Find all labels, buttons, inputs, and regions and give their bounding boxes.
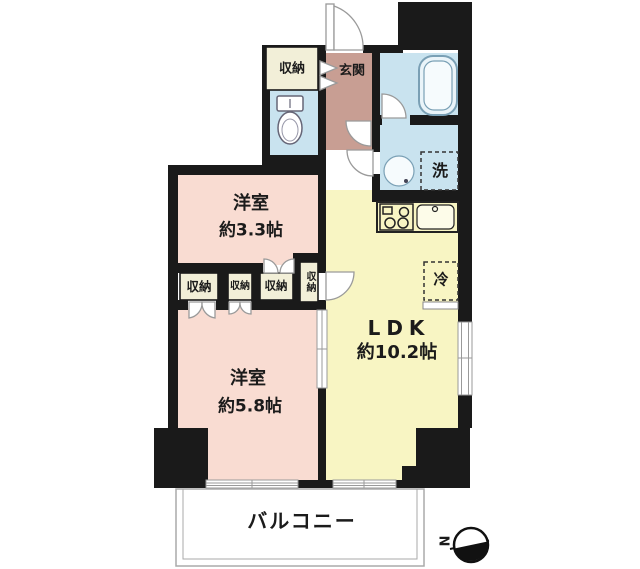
refrigerator-shelf — [423, 302, 458, 309]
entrance-door-leaf — [326, 4, 334, 50]
closet1-label: 収納 — [186, 281, 211, 294]
bathtub-icon — [419, 56, 457, 115]
washbasin-icon — [384, 156, 414, 186]
entrance-label: 玄関 — [339, 65, 365, 78]
kitchen-counter — [377, 202, 458, 232]
bedroom-small-size: 約3.3帖 — [219, 223, 283, 240]
floorplan-canvas: 収納 玄関 洋室 約3.3帖 収納 収納 収納 収納 洋室 約5.8帖 LDK … — [0, 0, 640, 569]
compass-icon — [450, 528, 489, 562]
bedroom-small-area — [178, 173, 318, 265]
washer-label: 洗 — [432, 163, 448, 179]
bedroom-large-size: 約5.8帖 — [218, 399, 282, 416]
balcony-label: バルコニー — [247, 511, 357, 531]
corner-pillar-top-right — [398, 2, 472, 50]
closet3-label: 収納 — [265, 280, 288, 292]
bedroom-large-name: 洋室 — [230, 370, 266, 388]
toilet-icon — [277, 96, 303, 144]
ldk-name: LDK — [368, 318, 431, 338]
sink-icon — [417, 205, 454, 229]
floorplan-drawing — [0, 0, 640, 569]
entrance-door-arc — [334, 6, 363, 50]
corner-pillar-bottom-left — [154, 428, 208, 488]
ldk-size: 約10.2帖 — [357, 344, 437, 362]
closet2-label: 収納 — [230, 282, 250, 292]
refrigerator-label: 冷 — [433, 273, 448, 288]
corner-pillar-bottom-right — [416, 428, 470, 488]
compass-north-label: N — [437, 536, 450, 547]
bedroom-small-name: 洋室 — [233, 195, 269, 213]
closet4-label: 収納 — [304, 271, 314, 293]
washroom-door-arc — [347, 150, 373, 176]
entry-closet-label: 収納 — [279, 63, 305, 76]
